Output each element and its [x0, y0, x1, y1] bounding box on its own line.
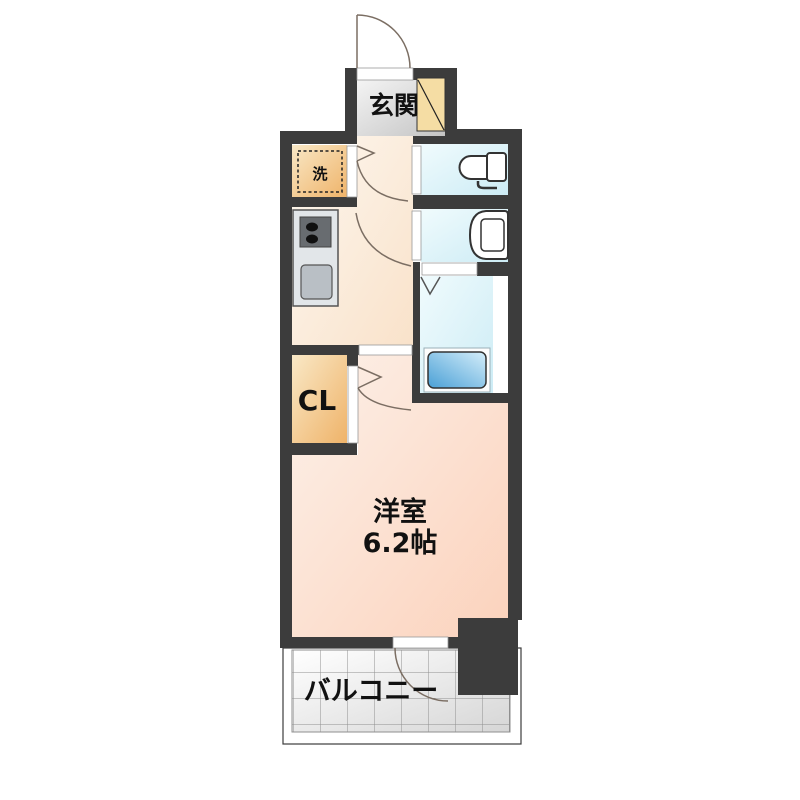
washer-door [347, 146, 357, 197]
wall-washer-bottom [280, 197, 357, 207]
closet-label: CL [298, 384, 337, 417]
wall-room-bottom [280, 637, 393, 648]
washer-label: 洗 [312, 165, 327, 183]
wall-corner-block-overlay [458, 618, 518, 695]
closet-door [348, 366, 358, 443]
wall-closet-bottom [280, 443, 357, 455]
shoe-cabinet [417, 78, 445, 131]
stove-icon [300, 217, 331, 247]
room-name-label: 洋室 [373, 496, 427, 528]
wall-toilet-divider [413, 195, 508, 209]
wall-entrance-left [345, 68, 357, 137]
washbasin-icon [470, 211, 508, 259]
kitchen-sink-icon [301, 265, 332, 299]
washbasin-door [412, 211, 421, 260]
wall-bath-bottom [412, 393, 522, 403]
wall-room-bottom-right [448, 637, 458, 648]
balcony-window [393, 637, 448, 648]
bathtub-icon [424, 348, 490, 392]
kitchen-unit [293, 210, 338, 306]
wall-bath-divider [477, 262, 508, 276]
bathroom-folding-door [422, 263, 477, 275]
wall-outer-right [508, 131, 522, 620]
entrance-door-arc [357, 15, 410, 68]
entrance-doorway [357, 68, 413, 80]
wall-bath-left [412, 262, 420, 403]
wall-kitchen-room [280, 345, 359, 355]
entrance-label: 玄関 [369, 91, 419, 120]
toilet-door [412, 146, 421, 194]
room-doorway [359, 345, 412, 355]
wall-door-corner [346, 355, 358, 366]
balcony-label: バルコニー [304, 676, 438, 707]
room-size-label: 6.2帖 [363, 528, 438, 559]
floorplan-page: 玄関 洗 CL 洋室 6.2帖 バルコニー [0, 0, 800, 800]
floorplan-drawing: 玄関 洗 CL 洋室 6.2帖 バルコニー [0, 0, 800, 800]
wall-outer-left [280, 131, 292, 648]
